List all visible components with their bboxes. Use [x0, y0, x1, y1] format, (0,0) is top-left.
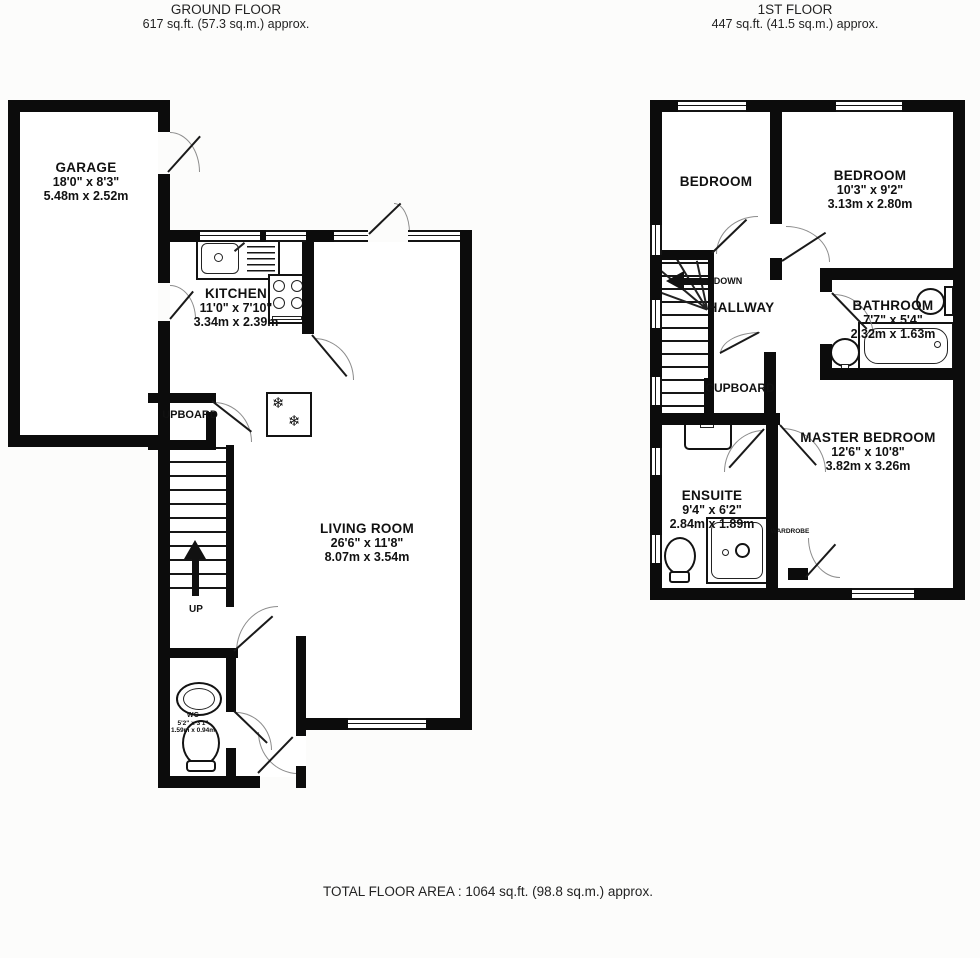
- wall: [296, 766, 306, 788]
- window: [836, 100, 902, 112]
- bathroom-sink-icon: [830, 338, 860, 367]
- ground-floor-title: GROUND FLOOR: [143, 2, 310, 17]
- room-label-cupboard-ff: CUPBOARD: [705, 382, 774, 395]
- wall: [820, 268, 832, 292]
- wall: [158, 174, 170, 283]
- room-label-wardrobe: WARDROBE: [771, 528, 810, 535]
- wall: [226, 445, 234, 607]
- stairs-down-label: DOWN: [714, 276, 743, 286]
- window: [650, 377, 662, 405]
- up-arrow-head-icon: [184, 540, 206, 559]
- window: [408, 230, 460, 242]
- wall: [158, 447, 170, 788]
- room-label-master-bedroom: MASTER BEDROOM 12'6" x 10'8" 3.82m x 3.2…: [800, 430, 935, 473]
- ensuite-toilet-base-icon: [669, 571, 690, 583]
- room-label-garage: GARAGE 18'0" x 8'3" 5.48m x 2.52m: [44, 160, 129, 203]
- room-label-hallway: HALLWAY: [708, 300, 775, 315]
- window: [650, 448, 662, 475]
- first-floor-title: 1ST FLOOR: [712, 2, 879, 17]
- wall: [226, 648, 236, 712]
- window: [650, 300, 662, 328]
- sink-drainer-icon: [247, 246, 275, 273]
- wall: [158, 230, 200, 242]
- room-label-wc: WC 5'2" x 3'1" 1.59m x 0.94m: [171, 712, 215, 734]
- window: [852, 588, 914, 600]
- wall: [148, 393, 216, 403]
- wall: [460, 230, 472, 730]
- wall: [158, 776, 260, 788]
- room-label-living-room: LIVING ROOM 26'6" x 11'8" 8.07m x 3.54m: [320, 521, 414, 564]
- wall: [650, 100, 662, 600]
- first-floor-area: 447 sq.ft. (41.5 sq.m.) approx.: [712, 17, 879, 31]
- stairs-up-label: UP: [189, 604, 203, 615]
- bath-drain-icon: [934, 341, 941, 348]
- window: [334, 230, 368, 242]
- ground-floor-header: GROUND FLOOR 617 sq.ft. (57.3 sq.m.) app…: [143, 2, 310, 31]
- wall: [650, 413, 780, 425]
- wall: [953, 100, 965, 600]
- wall: [158, 100, 170, 132]
- wall: [8, 435, 170, 447]
- room-label-ensuite: ENSUITE 9'4" x 6'2" 2.84m x 1.89m: [670, 488, 755, 531]
- wall: [8, 100, 20, 447]
- window: [650, 535, 662, 563]
- shower-drain-icon: [722, 549, 729, 556]
- wall: [8, 100, 170, 112]
- ground-floor-area: 617 sq.ft. (57.3 sq.m.) approx.: [143, 17, 310, 31]
- shower-control-icon: [735, 543, 750, 558]
- room-label-kitchen: KITCHEN 11'0" x 7'10" 3.34m x 2.39m: [194, 286, 279, 329]
- window: [200, 230, 260, 242]
- window: [266, 230, 306, 242]
- room-label-bathroom: BATHROOM 7'7" x 5'4" 2.32m x 1.63m: [851, 298, 936, 341]
- up-arrow-icon: [192, 558, 199, 596]
- down-arrow-head-icon: [666, 271, 684, 291]
- wall: [766, 425, 778, 588]
- wall: [820, 368, 965, 380]
- down-arrow-icon: [682, 278, 708, 285]
- wall: [296, 636, 306, 736]
- floorplan-page: GROUND FLOOR 617 sq.ft. (57.3 sq.m.) app…: [0, 0, 980, 958]
- wall: [788, 568, 808, 580]
- room-label-cupboard-gf: UPBOARD: [162, 409, 218, 421]
- wall: [826, 268, 965, 280]
- wc-toilet-base-icon: [186, 760, 216, 772]
- wall: [770, 100, 782, 224]
- snowflake-icon: ❄: [272, 396, 285, 411]
- wall: [158, 321, 170, 447]
- room-label-bedroom-right: BEDROOM 10'3" x 9'2" 3.13m x 2.80m: [828, 168, 913, 211]
- window: [678, 100, 746, 112]
- window: [348, 718, 426, 730]
- first-floor-header: 1ST FLOOR 447 sq.ft. (41.5 sq.m.) approx…: [712, 2, 879, 31]
- ensuite-toilet-icon: [664, 537, 696, 575]
- wall: [302, 230, 314, 334]
- room-label-bedroom-left: BEDROOM: [680, 174, 753, 189]
- sink-drain-icon: [214, 253, 223, 262]
- wall: [770, 258, 782, 280]
- window: [650, 225, 662, 255]
- total-floor-area: TOTAL FLOOR AREA : 1064 sq.ft. (98.8 sq.…: [323, 884, 653, 899]
- snowflake-icon: ❄: [288, 414, 301, 429]
- wc-sink-basin-icon: [183, 688, 215, 710]
- wall: [650, 588, 965, 600]
